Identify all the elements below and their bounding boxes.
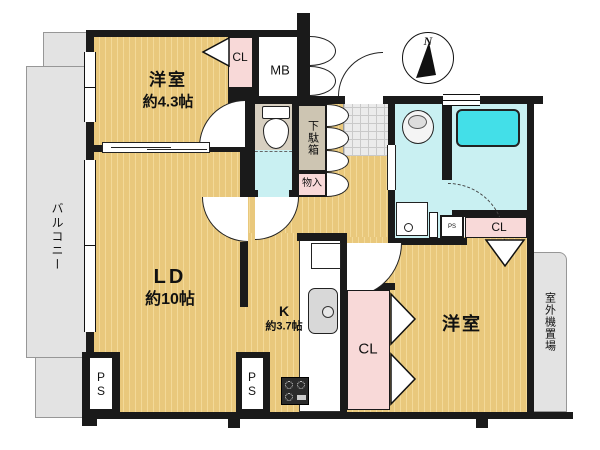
living-dining-size: 約10帖 <box>145 292 195 308</box>
outdoor-unit-label: 室外機置場 <box>544 292 555 352</box>
closet2-folding-door <box>389 352 417 406</box>
closet1-folding-door <box>200 36 230 68</box>
wall <box>248 104 255 197</box>
service-panel <box>429 212 438 238</box>
sliding-door <box>102 142 210 153</box>
bedroom1-size: 約4.3帖 <box>143 95 194 110</box>
shoe-cabinet-label: 下駄箱 <box>307 120 318 156</box>
bathtub <box>456 109 520 147</box>
grill <box>297 395 306 400</box>
closet3-folding-door <box>484 238 526 268</box>
wall <box>240 242 248 307</box>
floorplan: バルコニー 室外機置場 <box>0 0 600 450</box>
wall <box>476 419 488 428</box>
wall <box>297 233 347 241</box>
kitchen-size: 約3.7帖 <box>265 322 302 333</box>
meter-box-label: MB <box>270 64 290 77</box>
washbasin <box>402 110 434 144</box>
entrance-tile <box>343 104 391 156</box>
storage-label: 物入 <box>302 179 322 189</box>
burner <box>285 381 293 389</box>
wall <box>240 145 248 197</box>
toilet-floor-divider <box>250 151 297 152</box>
pipe-space2-label: PS <box>246 370 258 398</box>
pipe-space1-label: PS <box>95 370 107 398</box>
drain-circle <box>404 223 413 232</box>
wall <box>82 419 97 426</box>
wall <box>248 190 258 197</box>
closet3-label: CL <box>491 221 506 233</box>
window <box>84 160 96 332</box>
washroom-sliding-door <box>387 145 396 190</box>
kitchen-name: K <box>279 304 289 318</box>
window-tick <box>443 100 480 101</box>
closet1-label: CL <box>232 51 247 63</box>
wall <box>340 241 347 412</box>
wall <box>388 190 395 245</box>
wall <box>388 104 395 145</box>
bedroom1-name: 洋室 <box>149 72 187 89</box>
burner <box>297 381 305 389</box>
window-tick <box>84 245 96 246</box>
pipe-space3-label: PS <box>448 224 456 230</box>
wall <box>82 412 573 419</box>
kitchen-sink <box>308 288 338 334</box>
washing-machine-pan <box>396 202 428 236</box>
sliding-door-line <box>147 149 207 150</box>
wall <box>228 96 345 104</box>
closet2-folding-door <box>389 292 417 346</box>
compass: N <box>402 32 454 84</box>
closet2-label: CL <box>358 342 377 357</box>
sliding-door-line <box>111 147 171 148</box>
burner <box>285 393 293 401</box>
balcony-area <box>43 32 90 68</box>
living-dining-name: LD <box>154 267 187 287</box>
balcony-label: バルコニー <box>51 202 63 272</box>
refrigerator-space <box>311 243 341 269</box>
stove <box>281 377 309 405</box>
wall <box>86 30 310 37</box>
wall <box>527 96 534 412</box>
bedroom2-name: 洋室 <box>442 315 482 333</box>
wall <box>442 104 452 180</box>
window-tick <box>84 87 96 88</box>
wall <box>297 13 310 104</box>
sink-drain <box>322 306 334 318</box>
washbasin-bowl <box>408 115 427 129</box>
wall <box>228 419 240 428</box>
compass-north-label: N <box>424 34 433 49</box>
